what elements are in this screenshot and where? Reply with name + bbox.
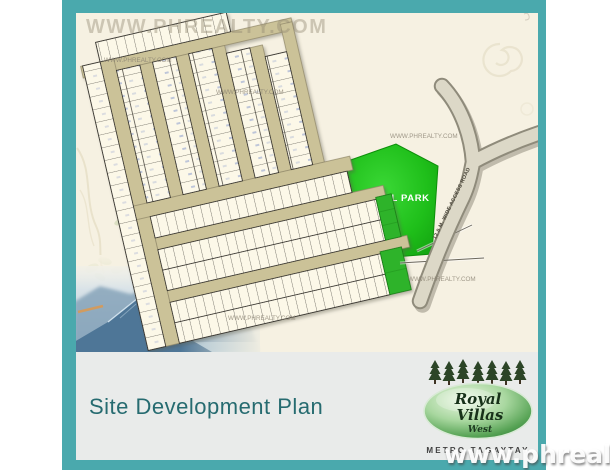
watermark-small: WWW.PHREALTY.COM	[408, 276, 476, 283]
site-development-map: CENTRAL PARK	[76, 13, 538, 352]
page: { "card": { "border_color": "#4aa9ad", "…	[0, 0, 610, 470]
watermark-small: WWW.PHREALTY.COM	[390, 133, 458, 140]
watermark-small: WWW.PHREALTY.COM	[216, 89, 284, 96]
page-title: Site Development Plan	[89, 394, 323, 420]
logo-name-line2: Villas	[457, 406, 504, 424]
logo-name-line3: West	[468, 425, 493, 435]
watermark-small: WWW.PHREALTY.COM	[104, 57, 172, 64]
site-plan-graphic: CENTRAL PARK	[76, 13, 538, 352]
pine-trees-icon	[428, 358, 528, 385]
plan-card: CENTRAL PARK	[62, 0, 546, 470]
watermark-small: WWW.PHREALTY.COM	[228, 315, 296, 322]
watermark-top: WWW.PHREALTY.COM	[86, 16, 327, 38]
corner-watermark: www.phrealty.com	[444, 440, 610, 469]
logo-oval: Royal Villas West	[422, 382, 534, 440]
